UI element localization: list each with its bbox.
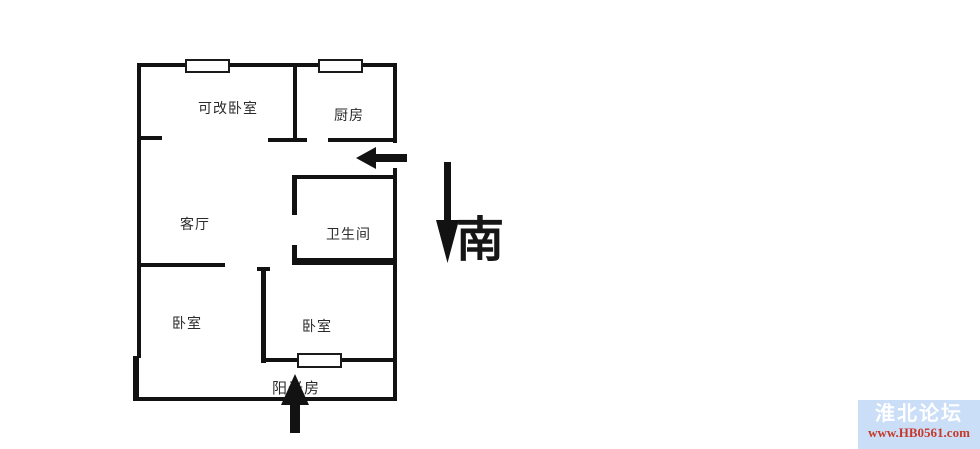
entrance-arrow-icon: [356, 146, 407, 170]
watermark: 淮北论坛 www.HB0561.com: [858, 400, 980, 449]
south-arrow-icon: [436, 162, 459, 263]
wall-segment: [293, 63, 297, 140]
wall-segment: [268, 138, 307, 142]
wall-segment: [138, 263, 225, 267]
window-marker: [318, 59, 363, 73]
watermark-site-name: 淮北论坛: [858, 401, 980, 425]
wall-segment: [137, 63, 141, 358]
window-marker: [185, 59, 230, 73]
wall-segment: [133, 356, 139, 401]
room-label-kitchen: 厨房: [334, 105, 364, 125]
wall-segment: [393, 168, 397, 401]
floor-plan: 可改卧室 厨房 客厅 卫生间 卧室 卧室 阳光房 南 淮北论坛 www.HB05…: [0, 0, 980, 449]
wall-segment: [133, 397, 397, 401]
wall-segment: [292, 175, 396, 179]
room-label-bedroom-left: 卧室: [172, 313, 202, 333]
room-label-convertible-bedroom: 可改卧室: [198, 98, 258, 118]
balcony-arrow-icon: [281, 374, 309, 433]
wall-segment: [137, 136, 162, 140]
watermark-site-url: www.HB0561.com: [858, 425, 980, 441]
window-marker: [297, 353, 342, 368]
wall-segment: [292, 175, 297, 215]
wall-segment: [261, 268, 266, 363]
room-label-bathroom: 卫生间: [326, 224, 371, 244]
room-label-living-room: 客厅: [180, 214, 210, 234]
room-label-bedroom-right: 卧室: [302, 316, 332, 336]
wall-segment: [393, 63, 397, 143]
south-label: 南: [456, 211, 504, 269]
wall-segment: [292, 258, 396, 265]
wall-segment: [328, 138, 397, 142]
